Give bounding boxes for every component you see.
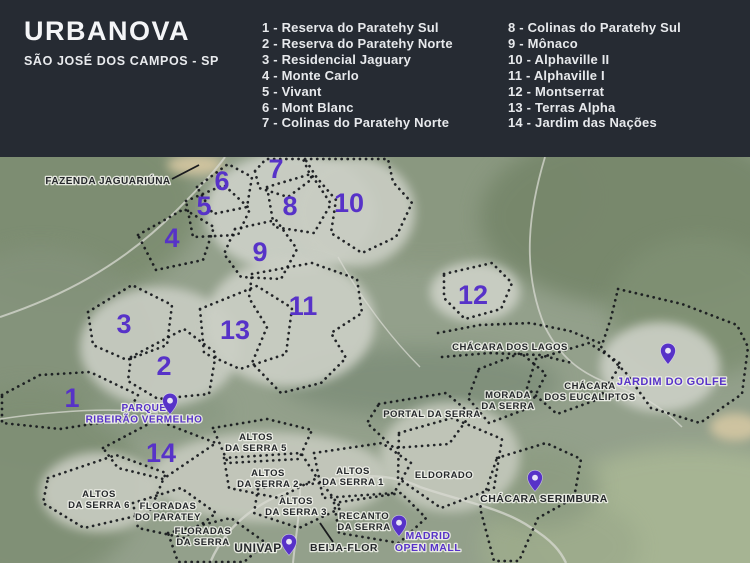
legend-item-9: 9 - Mônaco: [508, 36, 750, 52]
page-title: URBANOVA: [24, 16, 262, 47]
region-number-8: 8: [282, 191, 297, 221]
region-number-5: 5: [196, 191, 211, 221]
map-label-recanto-da-serra: DA SERRA: [337, 522, 390, 533]
map-label-recanto-da-serra: RECANTO: [339, 511, 389, 522]
map-label-altos-da-serra-3: DA SERRA 3: [265, 507, 327, 518]
map-label-altos-da-serra-3: ALTOS: [279, 496, 313, 507]
map-label-floradas-do-paratey: DO PARATEY: [135, 512, 201, 523]
legend-item-10: 10 - Alphaville II: [508, 52, 750, 68]
map-label-eldorado: ELDORADO: [415, 470, 473, 481]
region-number-2: 2: [156, 351, 171, 381]
header: URBANOVA SÃO JOSÉ DOS CAMPOS - SP 1 - Re…: [0, 0, 750, 157]
legend-column-2: 8 - Colinas do Paratehy Sul9 - Mônaco10 …: [508, 20, 750, 157]
legend-column-1: 1 - Reserva do Paratehy Sul2 - Reserva d…: [262, 20, 508, 157]
map-label-morada-da-serra: DA SERRA: [481, 401, 534, 412]
satellite-map: 1234567891011121314 FAZENDA JAGUARIÚNACH…: [0, 157, 750, 563]
region-number-7: 7: [268, 157, 283, 184]
region-number-14: 14: [146, 438, 176, 468]
page-subtitle: SÃO JOSÉ DOS CAMPOS - SP: [24, 54, 262, 68]
map-label-altos-da-serra-5: DA SERRA 5: [225, 443, 287, 454]
map-label-madrid-open-mall: OPEN MALL: [395, 542, 461, 554]
map-label-morada-da-serra: MORADA: [485, 390, 531, 401]
map-canvas: 1234567891011121314 FAZENDA JAGUARIÚNACH…: [0, 157, 750, 563]
map-label-altos-da-serra-2: ALTOS: [251, 468, 285, 479]
legend-item-1: 1 - Reserva do Paratehy Sul: [262, 20, 508, 36]
region-number-1: 1: [64, 383, 79, 413]
legend-item-3: 3 - Residencial Jaguary: [262, 52, 508, 68]
map-label-jardim-do-golfe: JARDIM DO GOLFE: [617, 376, 727, 388]
legend-item-4: 4 - Monte Carlo: [262, 68, 508, 84]
legend-item-13: 13 - Terras Alpha: [508, 100, 750, 116]
legend-item-12: 12 - Montserrat: [508, 84, 750, 100]
map-label-univap: UNIVAP: [234, 541, 281, 555]
region-number-6: 6: [214, 166, 229, 196]
legend-item-7: 7 - Colinas do Paratehy Norte: [262, 115, 508, 131]
legend-item-6: 6 - Mont Blanc: [262, 100, 508, 116]
map-label-fazenda-jaguariuna: FAZENDA JAGUARIÚNA: [45, 174, 170, 187]
legend-item-11: 11 - Alphaville I: [508, 68, 750, 84]
urbanova-neighborhood-map: URBANOVA SÃO JOSÉ DOS CAMPOS - SP 1 - Re…: [0, 0, 750, 563]
map-label-altos-da-serra-6: DA SERRA 6: [68, 500, 130, 511]
map-label-altos-da-serra-2: DA SERRA 2: [237, 479, 299, 490]
map-label-parque-ribeirao-vermelho: RIBEIRÃO VERMELHO: [86, 413, 203, 426]
map-label-chacara-dos-lagos: CHÁCARA DOS LAGOS: [452, 342, 568, 353]
map-label-floradas-da-serra: DA SERRA: [176, 537, 229, 548]
region-number-9: 9: [252, 237, 267, 267]
map-label-chacara-dos-eucaliptos: CHÁCARA: [564, 381, 616, 392]
map-label-chacara-serimbura: CHÁCARA SERIMBURA: [480, 492, 608, 505]
region-number-3: 3: [116, 309, 131, 339]
legend-item-14: 14 - Jardim das Nações: [508, 115, 750, 131]
legend-item-2: 2 - Reserva do Paratehy Norte: [262, 36, 508, 52]
map-label-floradas-da-serra: FLORADAS: [175, 526, 232, 537]
map-label-portal-da-serra: PORTAL DA SERRA: [383, 409, 481, 420]
map-label-floradas-do-paratey: FLORADAS: [140, 501, 197, 512]
map-label-altos-da-serra-6: ALTOS: [82, 489, 116, 500]
region-number-13: 13: [220, 315, 250, 345]
region-number-10: 10: [334, 188, 364, 218]
title-block: URBANOVA SÃO JOSÉ DOS CAMPOS - SP: [24, 14, 262, 157]
region-number-11: 11: [289, 291, 318, 321]
map-label-altos-da-serra-1: DA SERRA 1: [322, 477, 384, 488]
legend-item-8: 8 - Colinas do Paratehy Sul: [508, 20, 750, 36]
region-number-4: 4: [164, 223, 179, 253]
region-number-12: 12: [458, 280, 488, 310]
map-label-chacara-dos-eucaliptos: DOS EUCALIPTOS: [544, 392, 635, 403]
legend-item-5: 5 - Vivant: [262, 84, 508, 100]
map-label-beija-flor: BEIJA-FLOR: [310, 542, 378, 554]
map-label-madrid-open-mall: MADRID: [406, 530, 451, 542]
map-label-altos-da-serra-1: ALTOS: [336, 466, 370, 477]
map-label-altos-da-serra-5: ALTOS: [239, 432, 273, 443]
map-label-parque-ribeirao-vermelho: PARQUE: [121, 403, 166, 414]
